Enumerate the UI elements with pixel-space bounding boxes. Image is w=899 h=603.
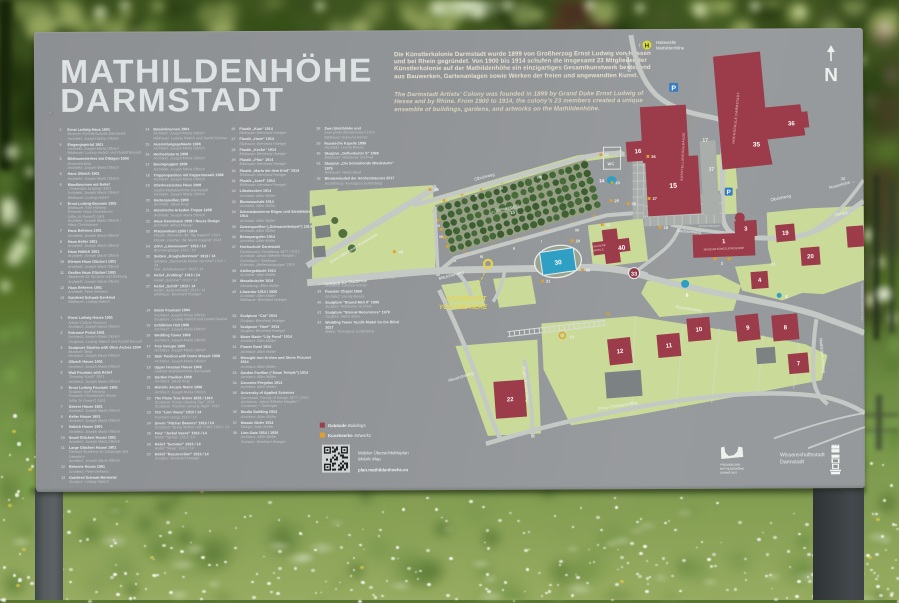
svg-text:I: I [541,240,542,244]
svg-text:27: 27 [652,196,657,201]
svg-text:31: 31 [546,279,551,284]
svg-text:Lucasweg: Lucasweg [625,53,633,73]
svg-text:WC: WC [608,161,615,166]
svg-text:Gebäude Buildings: Gebäude Buildings [328,423,367,428]
svg-text:26: 26 [651,154,656,159]
svg-text:32: 32 [606,222,611,227]
svg-text:29: 29 [576,238,581,243]
svg-text:H: H [645,44,649,50]
svg-text:DARMSTADT: DARMSTADT [720,471,738,475]
svg-text:Mobiler ÜbersichtsMaplan: Mobiler ÜbersichtsMaplan [358,450,409,455]
svg-text:VIII: VIII [537,176,542,180]
svg-text:17: 17 [702,138,708,144]
svg-text:45: 45 [434,187,439,192]
svg-text:40: 40 [618,244,626,252]
svg-text:35: 35 [753,141,761,148]
svg-text:6: 6 [686,293,689,299]
svg-text:24: 24 [615,180,620,185]
svg-text:Olbrichweg: Olbrichweg [770,193,792,202]
svg-text:39: 39 [631,201,636,206]
svg-text:plan.mathildenhoehe.eu: plan.mathildenhoehe.eu [358,467,409,472]
svg-text:P: P [671,85,676,92]
svg-text:15: 15 [669,183,677,190]
svg-text:XII: XII [575,228,579,232]
svg-text:VII: VII [439,235,443,239]
svg-text:Mathildenhöhe Darmstadt © 2021: Mathildenhöhe Darmstadt © 2021 [860,283,864,322]
svg-text:11: 11 [666,343,674,350]
svg-text:18: 18 [664,225,669,230]
svg-text:43: 43 [399,249,404,254]
svg-text:21: 21 [771,261,776,266]
svg-text:36: 36 [788,121,795,127]
svg-text:MUSEUMSSHOP: MUSEUMSSHOP [699,225,720,228]
svg-text:28: 28 [586,267,591,272]
svg-text:37: 37 [709,167,715,173]
svg-text:43: 43 [604,152,609,157]
svg-text:Haltestelle: Haltestelle [656,40,677,45]
svg-text:33: 33 [631,272,637,278]
svg-text:Mathildenhöhe: Mathildenhöhe [656,45,685,50]
svg-text:II: II [513,247,515,251]
svg-text:19: 19 [782,230,790,237]
svg-text:N: N [824,65,838,86]
svg-text:P: P [727,189,731,196]
svg-text:38: 38 [841,176,846,181]
svg-text:Kunstwerke Artworks: Kunstwerke Artworks [328,433,372,438]
svg-text:22: 22 [507,397,515,404]
svg-text:Wissenschaftsstadt: Wissenschaftsstadt [780,452,825,458]
svg-text:30: 30 [554,259,563,267]
svg-text:Mobile Map: Mobile Map [358,456,381,461]
svg-text:20: 20 [807,254,815,261]
svg-text:YOU ARE HERE: YOU ARE HERE [439,304,488,311]
svg-text:13: 13 [569,334,574,339]
svg-text:Sachsenweg: Sachsenweg [677,228,702,235]
svg-text:2: 2 [721,261,724,266]
svg-text:III: III [480,255,483,259]
svg-text:STANDORT: STANDORT [446,296,488,303]
svg-text:34: 34 [605,311,611,316]
svg-text:25: 25 [614,198,619,203]
svg-text:Darmstadt: Darmstadt [780,459,805,465]
svg-text:10: 10 [695,327,703,334]
svg-text:16: 16 [634,149,642,156]
svg-text:14: 14 [599,178,605,183]
svg-text:IV: IV [500,187,504,191]
svg-text:↑: ↑ [638,43,641,49]
